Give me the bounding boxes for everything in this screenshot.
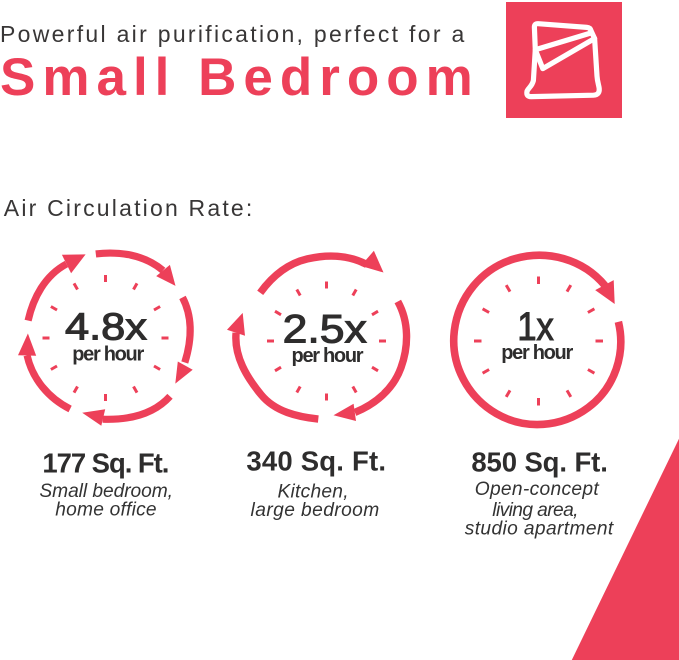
svg-text:Open-concept: Open-concept [475, 479, 600, 500]
svg-text:per hour: per hour [501, 342, 573, 364]
svg-text:home office: home office [55, 500, 156, 521]
svg-text:large bedroom: large bedroom [251, 500, 380, 521]
svg-text:4.8x: 4.8x [65, 306, 147, 348]
svg-text:177 Sq. Ft.: 177 Sq. Ft. [42, 447, 169, 478]
svg-text:340 Sq. Ft.: 340 Sq. Ft. [246, 446, 386, 477]
svg-text:850 Sq. Ft.: 850 Sq. Ft. [471, 446, 608, 477]
svg-text:studio apartment: studio apartment [465, 518, 614, 539]
svg-text:per hour: per hour [292, 345, 364, 367]
svg-text:per hour: per hour [72, 343, 144, 365]
